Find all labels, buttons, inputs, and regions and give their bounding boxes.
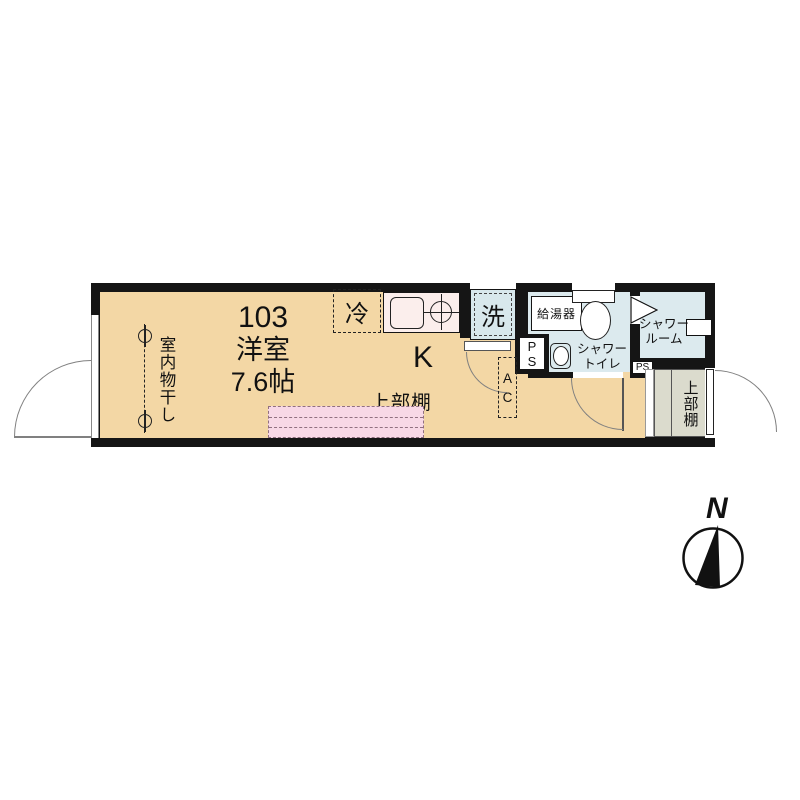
bathroom-bottom-wall — [528, 372, 573, 378]
room-upper-shelf — [268, 406, 424, 438]
ac-space: A C — [498, 357, 517, 418]
corridor-door-opening — [464, 341, 511, 351]
unit-number: 103 — [178, 301, 348, 334]
bathroom-sink-bowl-icon — [553, 346, 569, 366]
entrance-door-leaf — [706, 369, 714, 435]
shower-room-label: シャワー ルーム — [634, 317, 694, 347]
pipe-space-box: P S — [520, 338, 544, 369]
wall-washer-bathroom — [516, 283, 528, 338]
entrance-shelf: 上部棚 — [654, 369, 706, 437]
entrance-door-swing-arc — [715, 370, 777, 432]
stove-burner-cross-v — [441, 294, 442, 330]
laundry-hook-top-icon — [138, 329, 152, 343]
room-upper-shelf-line1 — [269, 417, 423, 418]
ac-letter-c: C — [503, 391, 513, 404]
entrance-upper-shelf-label: 上部棚 — [674, 375, 706, 433]
ac-letter-a: A — [503, 372, 512, 385]
laundry-hook-bottom-icon — [138, 414, 152, 428]
wall-counter-washer — [460, 283, 470, 338]
unit-size: 7.6帖 — [178, 366, 348, 398]
corridor-floor — [630, 378, 645, 438]
shower-toilet-label-line2: トイレ — [572, 357, 632, 372]
fridge-label: 冷 — [345, 294, 369, 329]
left-door-leaf — [14, 436, 91, 438]
floorplan-page: { "unit": { "number": "103", "room_type"… — [0, 0, 800, 800]
washer-space: 洗 — [470, 289, 516, 340]
shower-room-label-line1: シャワー — [634, 317, 694, 332]
kitchen-sink-icon — [390, 297, 424, 329]
left-wall-opening — [91, 315, 99, 438]
kitchen-label: K — [405, 341, 441, 375]
pipe-space-letter-p: P — [520, 339, 544, 354]
indoor-drying-label: 室内物干し — [154, 336, 178, 436]
entrance-shelf-divider — [671, 370, 672, 436]
shower-toilet-label-line1: シャワー — [572, 342, 632, 357]
compass-icon — [676, 521, 752, 597]
unit-room-type: 洋室 — [178, 334, 348, 366]
left-door-swing-arc — [14, 360, 91, 437]
pipe-space-letter-s: S — [520, 354, 544, 369]
washer-dashed-frame: 洗 — [474, 293, 512, 336]
unit-label-block: 103 洋室 7.6帖 — [178, 301, 348, 398]
toilet-bowl-icon — [580, 301, 611, 340]
entrance-floor-strip — [645, 369, 654, 437]
washer-label: 洗 — [481, 297, 505, 332]
shower-room-label-line2: ルーム — [634, 332, 694, 347]
room-upper-shelf-line2 — [269, 427, 423, 428]
shower-toilet-label: シャワー トイレ — [572, 342, 632, 371]
